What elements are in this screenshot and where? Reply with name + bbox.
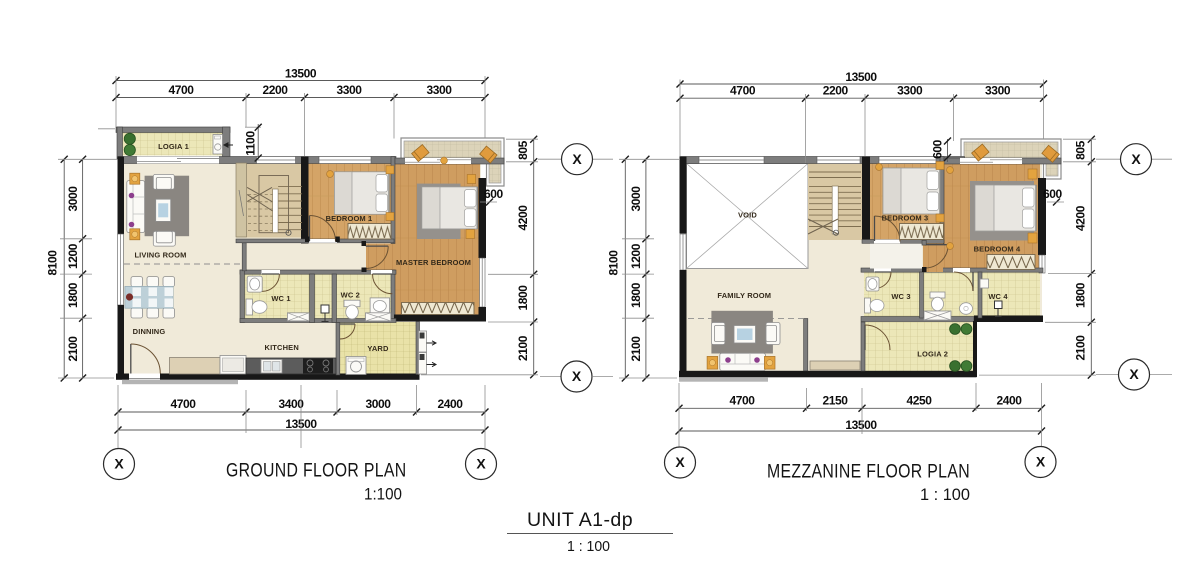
svg-text:3300: 3300	[426, 83, 452, 97]
svg-text:3000: 3000	[66, 186, 80, 212]
svg-text:805: 805	[1074, 140, 1088, 160]
svg-text:3300: 3300	[985, 84, 1011, 98]
svg-text:WC 2: WC 2	[341, 291, 360, 300]
svg-text:MEZZANINE FLOOR PLAN: MEZZANINE FLOOR PLAN	[767, 462, 970, 483]
svg-text:3300: 3300	[336, 83, 362, 97]
svg-text:4700: 4700	[730, 84, 756, 98]
svg-text:DINNING: DINNING	[133, 327, 166, 336]
svg-text:BEDROOM 1: BEDROOM 1	[326, 214, 373, 223]
svg-text:4700: 4700	[170, 397, 196, 411]
svg-text:4200: 4200	[516, 205, 530, 231]
svg-text:2400: 2400	[996, 393, 1022, 407]
svg-text:1800: 1800	[66, 282, 80, 308]
svg-text:4250: 4250	[906, 393, 932, 407]
svg-text:X: X	[675, 454, 685, 470]
svg-text:WC 4: WC 4	[988, 292, 1008, 301]
svg-text:2150: 2150	[822, 393, 848, 407]
svg-text:LOGIA 1: LOGIA 1	[158, 142, 189, 151]
svg-text:13500: 13500	[845, 70, 877, 84]
svg-text:2200: 2200	[823, 84, 849, 98]
svg-text:KITCHEN: KITCHEN	[265, 343, 299, 352]
svg-text:3300: 3300	[897, 84, 923, 98]
svg-text:3400: 3400	[278, 397, 304, 411]
svg-text:1200: 1200	[66, 243, 80, 269]
svg-text:WC 1: WC 1	[271, 294, 290, 303]
svg-text:X: X	[1131, 151, 1141, 167]
svg-text:LOGIA 2: LOGIA 2	[917, 350, 948, 359]
svg-text:BEDROOM 4: BEDROOM 4	[974, 245, 1021, 254]
svg-text:4700: 4700	[729, 393, 755, 407]
svg-text:X: X	[476, 456, 486, 472]
svg-text:1800: 1800	[1074, 282, 1088, 308]
svg-text:UNIT A1-dp: UNIT A1-dp	[527, 510, 633, 531]
svg-text:805: 805	[516, 140, 530, 160]
svg-text:2100: 2100	[66, 336, 80, 362]
svg-text:X: X	[1129, 366, 1139, 382]
svg-text:1 : 100: 1 : 100	[567, 538, 610, 555]
svg-text:GROUND FLOOR PLAN: GROUND FLOOR PLAN	[226, 461, 407, 482]
svg-text:1:100: 1:100	[364, 486, 402, 504]
svg-text:2100: 2100	[629, 336, 643, 362]
svg-text:1 : 100: 1 : 100	[920, 486, 970, 504]
svg-text:WC 3: WC 3	[891, 292, 910, 301]
svg-text:13500: 13500	[285, 67, 317, 81]
svg-text:1800: 1800	[516, 285, 530, 311]
svg-text:1100: 1100	[244, 131, 258, 156]
svg-text:BEDROOM 3: BEDROOM 3	[882, 214, 929, 223]
svg-text:3000: 3000	[629, 186, 643, 212]
svg-text:2200: 2200	[262, 83, 288, 97]
svg-text:8100: 8100	[46, 250, 60, 276]
svg-text:MASTER BEDROOM: MASTER BEDROOM	[396, 258, 471, 267]
svg-text:YARD: YARD	[367, 344, 389, 353]
svg-text:4700: 4700	[168, 83, 194, 97]
svg-text:FAMILY ROOM: FAMILY ROOM	[717, 291, 771, 300]
svg-text:600: 600	[484, 187, 504, 201]
svg-text:X: X	[1036, 454, 1046, 470]
svg-text:8100: 8100	[607, 250, 621, 276]
svg-text:X: X	[572, 151, 582, 167]
svg-text:LIVING ROOM: LIVING ROOM	[134, 251, 186, 260]
svg-text:600: 600	[931, 139, 945, 159]
svg-text:3000: 3000	[365, 397, 391, 411]
svg-text:2100: 2100	[516, 335, 530, 361]
svg-text:VOID: VOID	[738, 211, 757, 220]
svg-text:X: X	[114, 456, 124, 472]
svg-text:2400: 2400	[437, 397, 463, 411]
svg-text:1800: 1800	[629, 282, 643, 308]
svg-text:13500: 13500	[845, 418, 877, 432]
svg-text:4200: 4200	[1074, 205, 1088, 231]
svg-text:1200: 1200	[629, 243, 643, 269]
svg-text:X: X	[572, 368, 582, 384]
svg-text:2100: 2100	[1074, 335, 1088, 361]
